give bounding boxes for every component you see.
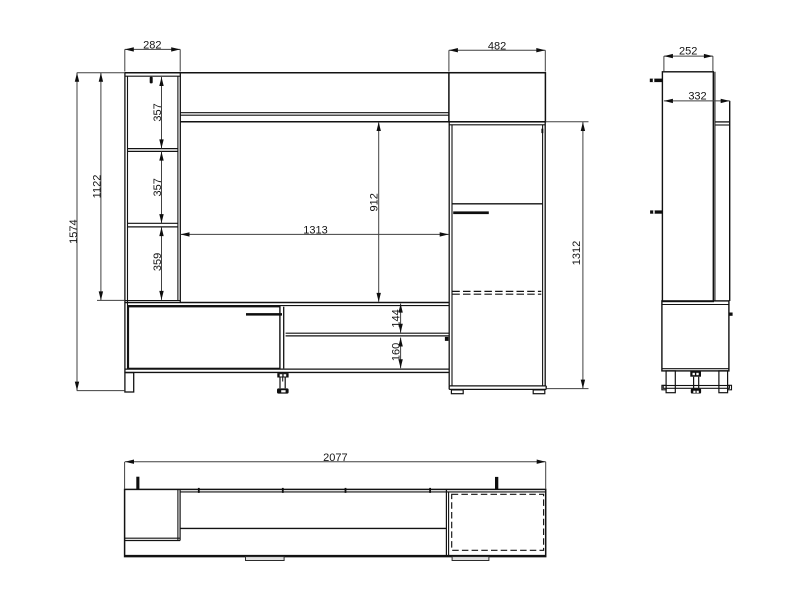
svg-text:1313: 1313 bbox=[303, 225, 327, 237]
svg-text:144: 144 bbox=[391, 309, 403, 327]
svg-text:359: 359 bbox=[152, 253, 164, 271]
svg-text:912: 912 bbox=[368, 193, 380, 211]
svg-text:357: 357 bbox=[152, 103, 164, 121]
svg-text:357: 357 bbox=[152, 178, 164, 196]
svg-text:1312: 1312 bbox=[571, 241, 583, 265]
svg-text:252: 252 bbox=[679, 46, 697, 58]
svg-text:160: 160 bbox=[391, 343, 403, 361]
svg-text:1574: 1574 bbox=[68, 219, 80, 243]
svg-text:282: 282 bbox=[143, 40, 161, 52]
svg-text:332: 332 bbox=[688, 91, 706, 103]
svg-text:482: 482 bbox=[488, 41, 506, 53]
svg-text:2077: 2077 bbox=[323, 452, 347, 464]
svg-text:1122: 1122 bbox=[92, 175, 104, 199]
